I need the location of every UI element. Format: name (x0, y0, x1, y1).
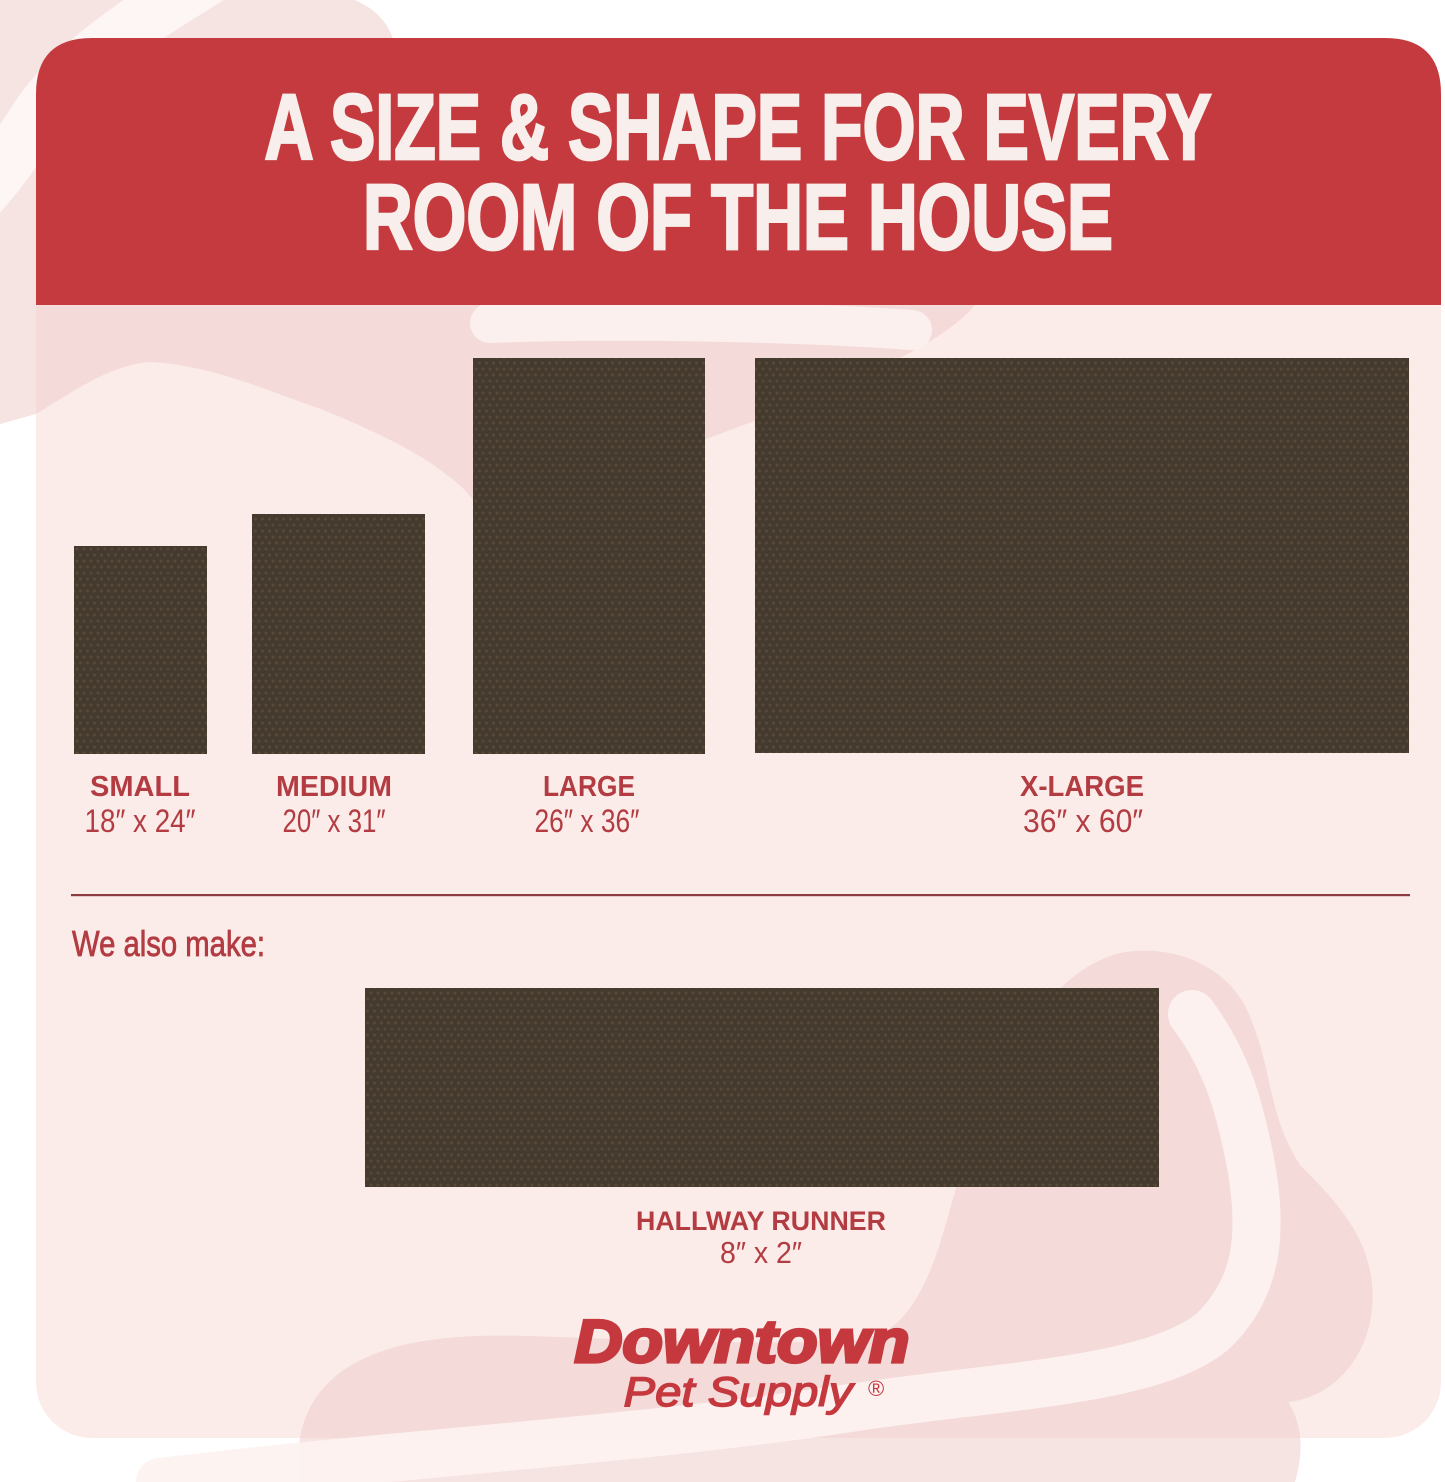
svg-text:®: ® (868, 1376, 884, 1401)
svg-text:SMALL: SMALL (90, 771, 190, 803)
svg-text:20″ x 31″: 20″ x 31″ (283, 803, 386, 839)
svg-text:Pet Supply: Pet Supply (624, 1368, 856, 1415)
svg-text:We also make:: We also make: (72, 923, 265, 964)
svg-text:36″ x 60″: 36″ x 60″ (1023, 803, 1143, 839)
svg-text:HALLWAY RUNNER: HALLWAY RUNNER (636, 1206, 886, 1236)
svg-text:LARGE: LARGE (543, 771, 635, 803)
svg-text:ROOM OF THE HOUSE: ROOM OF THE HOUSE (363, 165, 1113, 269)
svg-text:8″ x 2″: 8″ x 2″ (720, 1235, 802, 1270)
svg-text:26″ x 36″: 26″ x 36″ (535, 803, 640, 839)
svg-text:18″ x 24″: 18″ x 24″ (85, 803, 196, 839)
svg-text:Downtown: Downtown (575, 1308, 910, 1375)
svg-text:X-LARGE: X-LARGE (1020, 771, 1144, 803)
svg-text:A SIZE & SHAPE FOR EVERY: A SIZE & SHAPE FOR EVERY (265, 75, 1212, 179)
svg-text:MEDIUM: MEDIUM (276, 771, 392, 803)
